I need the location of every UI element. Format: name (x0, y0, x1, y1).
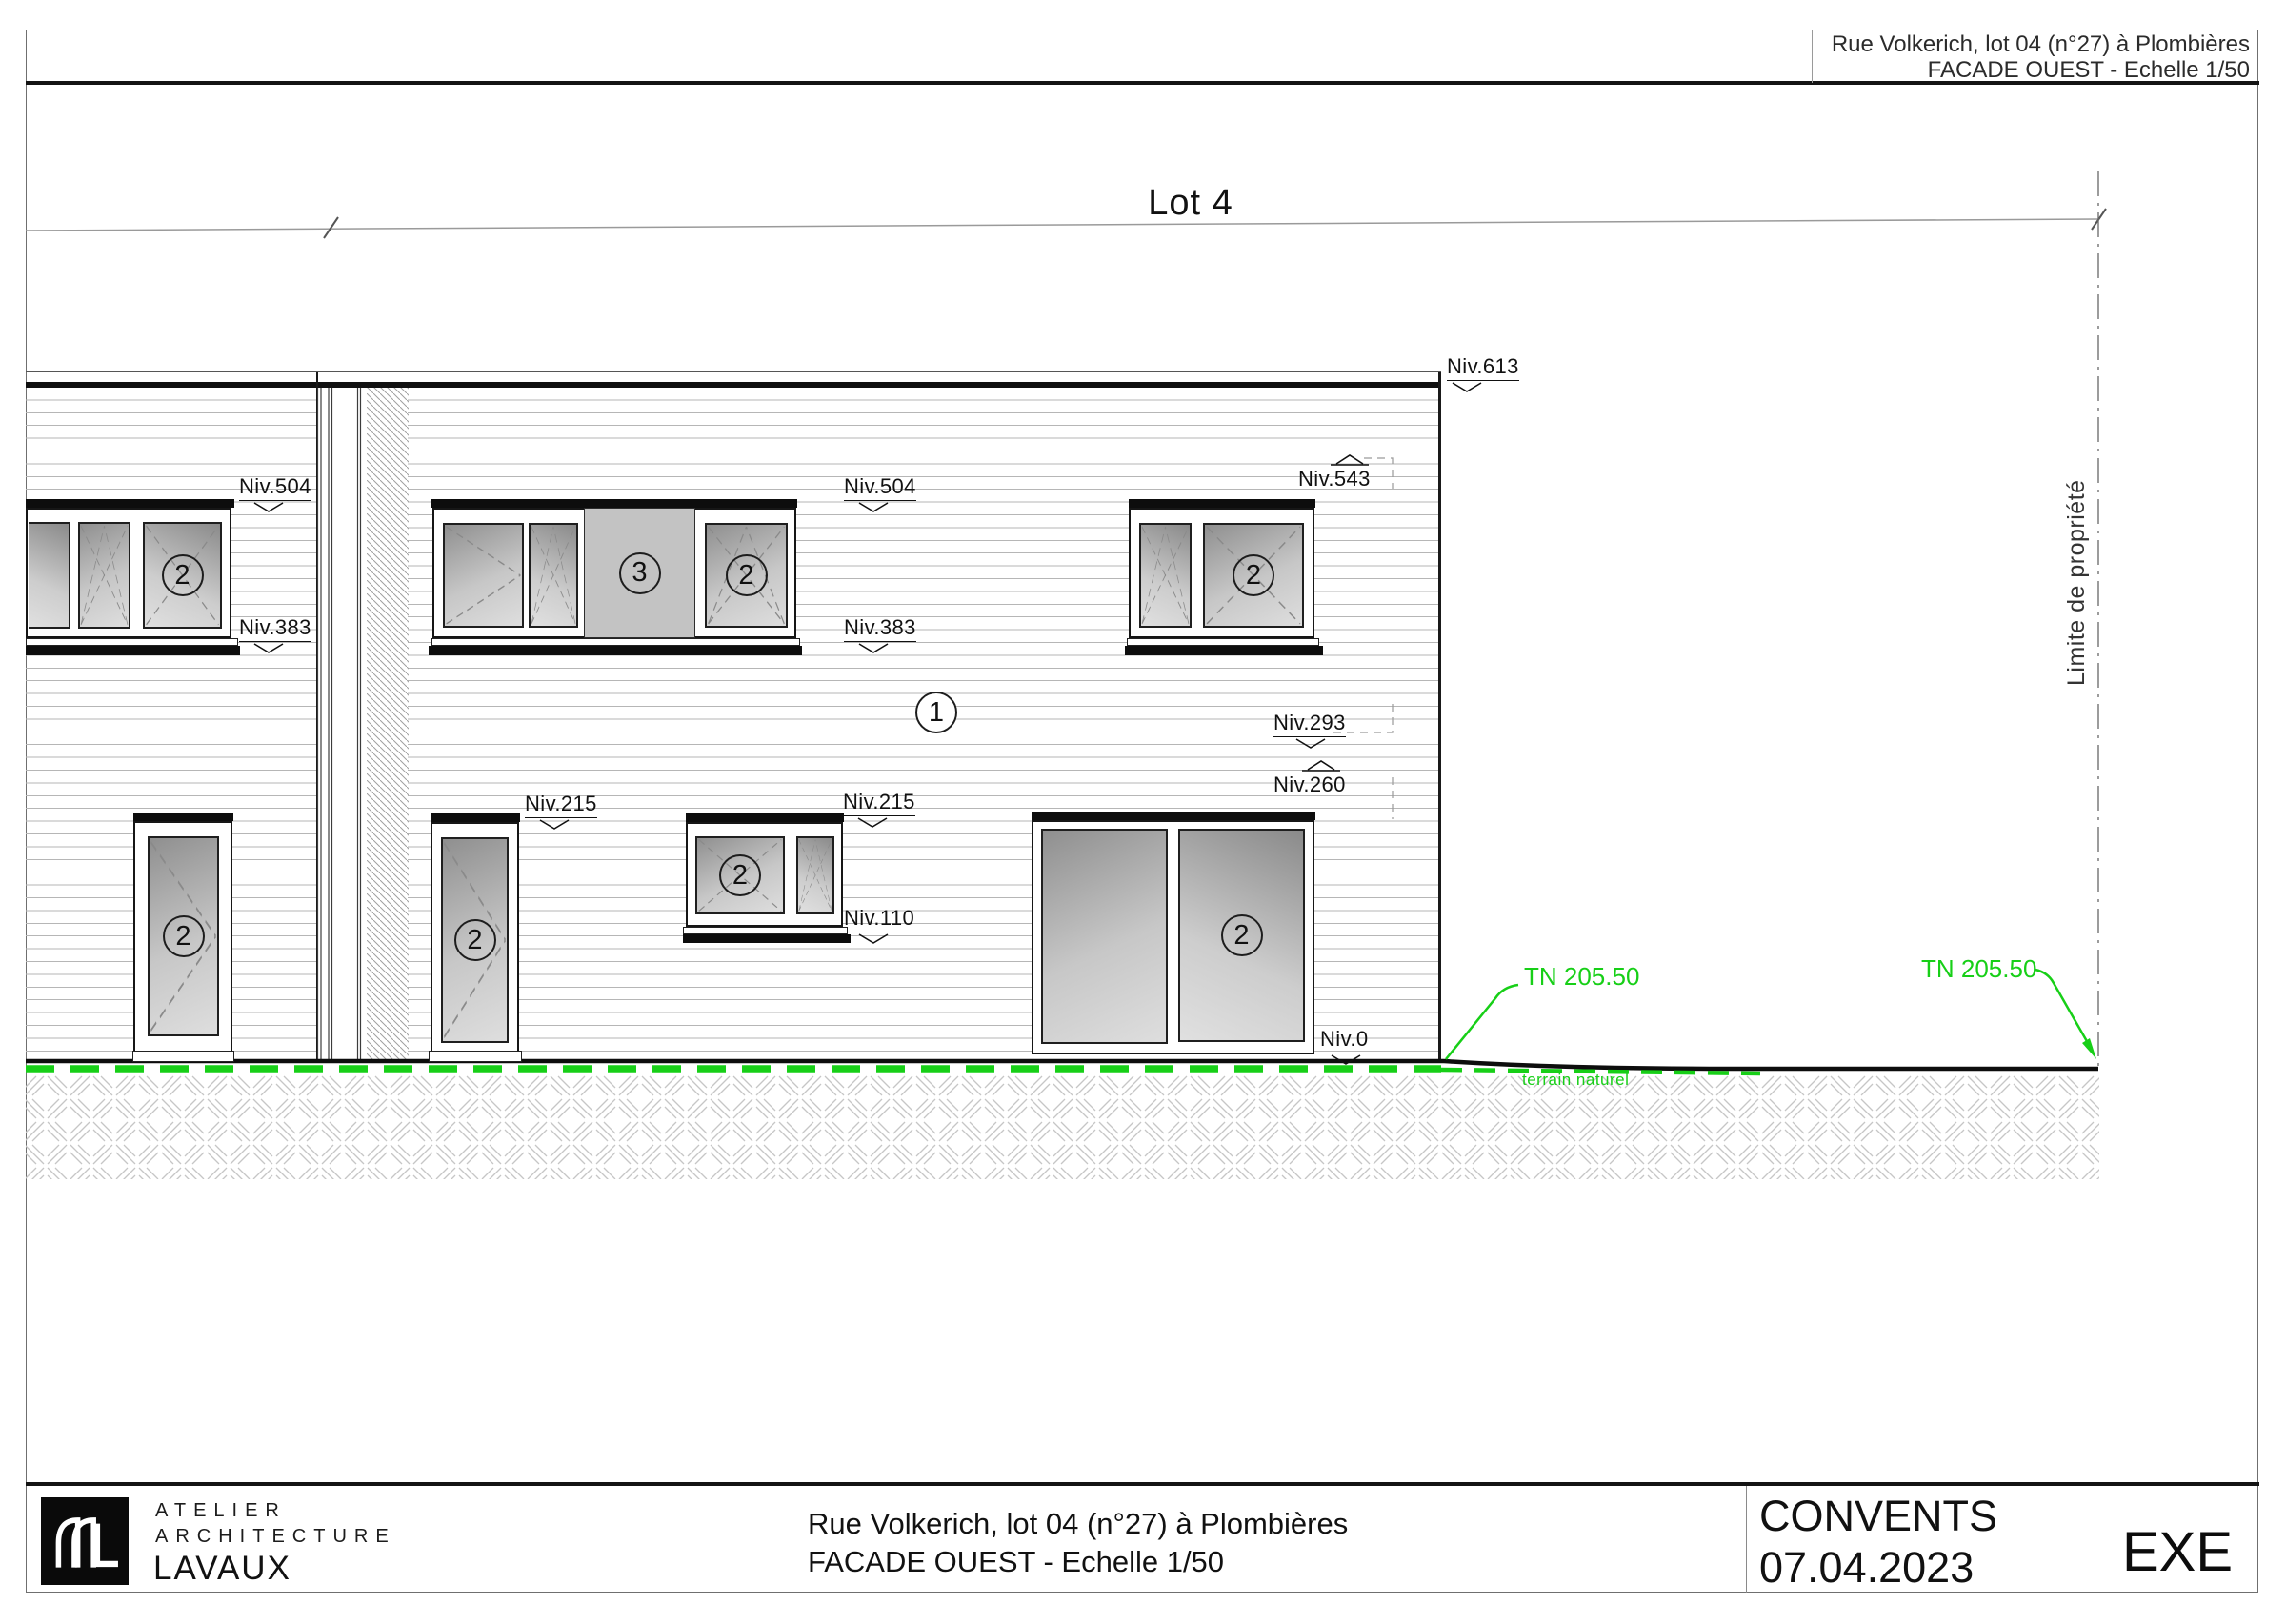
window-pane: 2 (1203, 523, 1304, 628)
window-type-tag: 2 (726, 554, 768, 596)
window-pane (29, 522, 70, 629)
property-limit-label: Limite de propriété (2063, 457, 2091, 686)
window-type-tag: 2 (162, 554, 204, 596)
door-lintel (1032, 812, 1315, 820)
panel-type-tag: 3 (619, 552, 661, 594)
header-drawing-title: FACADE OUEST - Echelle 1/50 (1832, 57, 2250, 83)
firm-logo-monogram (41, 1497, 129, 1585)
window-lintel (26, 499, 234, 508)
window-sill-step (431, 638, 800, 646)
window-pane (796, 836, 834, 914)
window-pane (443, 523, 524, 628)
level-label-293: Niv.293 (1273, 711, 1346, 749)
window-sill-step (683, 927, 848, 934)
window-pane: 2 (695, 836, 785, 914)
door-threshold (132, 1051, 234, 1062)
window-lintel (686, 813, 844, 822)
door-type-tag: 2 (1221, 914, 1263, 956)
titleblock-address: Rue Volkerich, lot 04 (n°27) à Plombière… (808, 1507, 1348, 1541)
window-pane: 2 (143, 522, 222, 629)
window-pane: 2 (705, 523, 788, 628)
titleblock-drawing-title: FACADE OUEST - Echelle 1/50 (808, 1545, 1224, 1579)
level-label-613: Niv.613 (1447, 354, 1519, 392)
sheet-header: Rue Volkerich, lot 04 (n°27) à Plombière… (1832, 31, 2250, 83)
level-label-383: Niv.383 (844, 615, 916, 653)
level-label-260: Niv.260 (1273, 759, 1346, 798)
window-sill-bar (26, 646, 240, 655)
parapet-bar (26, 382, 1441, 388)
window-lintel (1129, 499, 1315, 508)
door-lintel (431, 813, 520, 822)
drawing-sheet: Rue Volkerich, lot 04 (n°27) à Plombière… (0, 0, 2286, 1624)
door-lintel (133, 813, 233, 821)
tn-label-right: TN 205.50 (1921, 954, 2036, 984)
level-label-504-left: Niv.504 (239, 474, 311, 512)
window-pane (529, 523, 578, 628)
firm-name-line2: ARCHITECTURE (155, 1526, 396, 1548)
window-pane (1139, 523, 1192, 628)
facade-tag: 1 (915, 692, 957, 733)
natural-terrain-label: terrain naturel (1522, 1071, 1629, 1090)
drawing-status-stamp: EXE (2122, 1520, 2233, 1584)
level-label-110: Niv.110 (844, 906, 914, 944)
window-pane (78, 522, 130, 629)
main-glazed-door: 2 (431, 813, 526, 1063)
project-name: CONVENTS (1759, 1492, 1997, 1541)
level-label-383-left: Niv.383 (239, 615, 311, 653)
door-pane: 2 (441, 837, 509, 1043)
main-low-window: 2 (686, 813, 857, 947)
window-sill-bar (429, 646, 802, 655)
facade-panel: 3 (584, 508, 695, 638)
door-type-tag: 2 (454, 919, 496, 961)
firm-logo (41, 1497, 129, 1585)
level-label-215-window: Niv.215 (843, 790, 915, 828)
sliding-panel: 2 (1178, 829, 1305, 1042)
tn-label-left: TN 205.50 (1524, 962, 1639, 992)
level-label-504: Niv.504 (844, 474, 916, 512)
project-date: 07.04.2023 (1759, 1543, 1974, 1593)
window-lintel (431, 499, 797, 508)
door-threshold (429, 1051, 522, 1062)
level-label-0: Niv.0 (1320, 1027, 1369, 1065)
lot-title: Lot 4 (1095, 183, 1286, 224)
titleblock-top-rule (26, 1482, 2259, 1486)
window-type-tag: 2 (1233, 554, 1274, 596)
level-label-543: Niv.543 (1298, 453, 1371, 492)
firm-name-line3: LAVAUX (153, 1550, 291, 1588)
neighbour-glazed-door: 2 (132, 813, 237, 1063)
header-box-divider (1812, 30, 1813, 83)
neighbour-right-edge (316, 372, 318, 1062)
firm-name-line1: ATELIER (155, 1500, 287, 1522)
window-type-tag: 2 (719, 854, 761, 896)
window-sill-step (1127, 638, 1319, 646)
main-upper-window-group: 3 2 (431, 499, 805, 661)
sliding-panel (1041, 829, 1168, 1044)
window-sill-bar (683, 934, 851, 943)
header-address: Rue Volkerich, lot 04 (n°27) à Plombière… (1832, 31, 2250, 57)
door-type-tag: 2 (163, 915, 205, 957)
window-sill-bar (1125, 646, 1323, 655)
titleblock-divider (1746, 1486, 1747, 1593)
window-sill-step (26, 638, 238, 646)
level-label-215-door: Niv.215 (525, 792, 597, 830)
parapet-top-line (26, 371, 1441, 372)
sliding-glass-door: 2 (1032, 812, 1317, 1062)
neighbour-upper-window: 2 (26, 499, 240, 661)
main-upper-right-window: 2 (1129, 499, 1325, 661)
door-pane: 2 (148, 836, 219, 1036)
main-right-edge (1438, 372, 1441, 1062)
